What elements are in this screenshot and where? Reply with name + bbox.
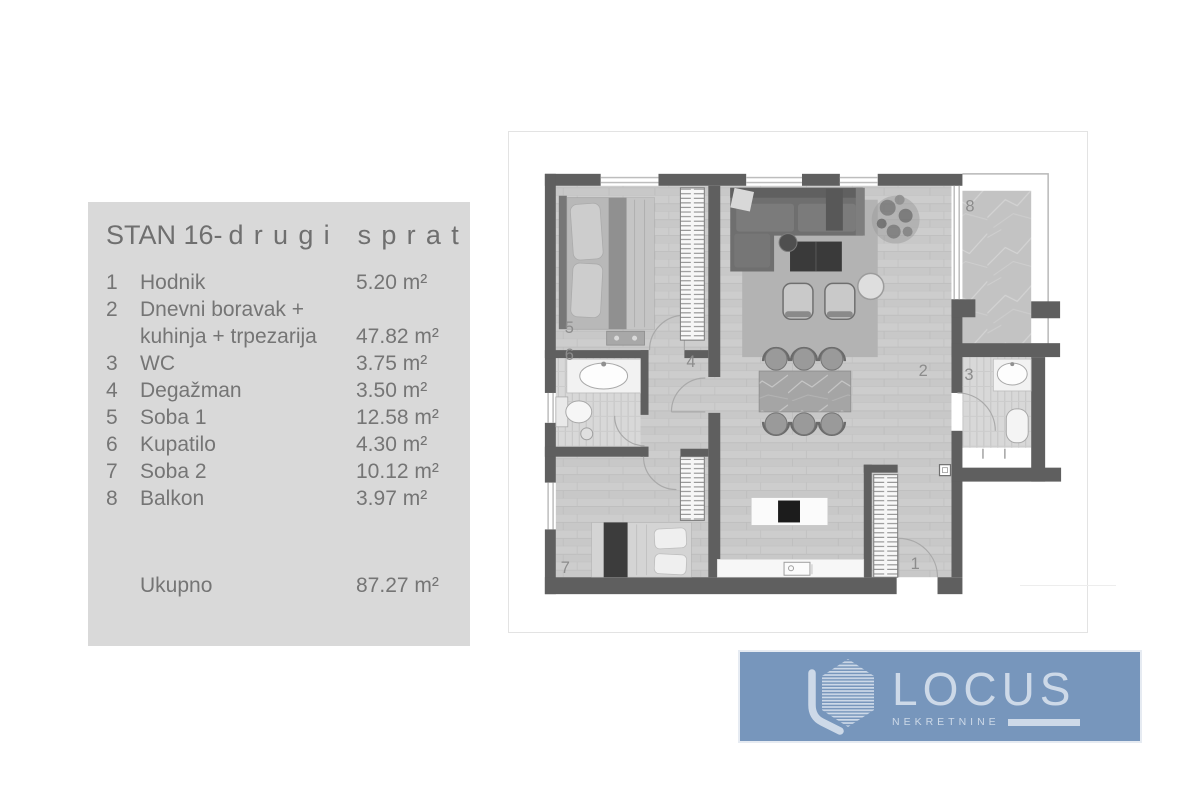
logo-text: LOCUS NEKRETNINE xyxy=(892,665,1080,728)
pouf xyxy=(858,273,884,299)
brand-name: LOCUS xyxy=(892,665,1080,713)
total-row: Ukupno 87.27 m² xyxy=(106,572,452,599)
label-hodnik: 1 xyxy=(911,555,920,573)
room-row: 7 Soba 2 10.12 m² xyxy=(106,458,452,485)
label-degazman: 4 xyxy=(686,353,695,371)
room-area: 3.50 m² xyxy=(356,377,452,404)
room-name: Degažman xyxy=(140,377,354,404)
room-name: Hodnik xyxy=(140,269,354,296)
room-area: 3.75 m² xyxy=(356,350,452,377)
title-floor: drugi sprat xyxy=(229,220,469,250)
room-name: Dnevni boravak + kuhinja + trpezarija xyxy=(140,296,354,350)
total-area: 87.27 m² xyxy=(356,572,452,599)
page-title: STAN 16-drugi sprat xyxy=(106,220,452,251)
room-row: 6 Kupatilo 4.30 m² xyxy=(106,431,452,458)
cooktop xyxy=(778,501,800,523)
brand-subrow: NEKRETNINE xyxy=(892,716,1080,728)
room-name: Balkon xyxy=(140,485,354,512)
room-number: 6 xyxy=(106,431,140,458)
room-number: 3 xyxy=(106,350,140,377)
drafting-line xyxy=(1020,585,1116,586)
dining-set xyxy=(759,348,851,435)
label-living: 2 xyxy=(919,362,928,380)
room-name: Kupatilo xyxy=(140,431,354,458)
room-row: 8 Balkon 3.97 m² xyxy=(106,485,452,512)
room-number: 8 xyxy=(106,485,140,512)
room-row: 2 Dnevni boravak + kuhinja + trpezarija … xyxy=(106,296,452,350)
apartment-info-panel: STAN 16-drugi sprat 1 Hodnik 5.20 m² 2 D… xyxy=(88,202,470,646)
label-kupatilo: 6 xyxy=(565,346,574,364)
room-row: 5 Soba 1 12.58 m² xyxy=(106,404,452,431)
room-area: 47.82 m² xyxy=(356,323,452,350)
bed-soba2 xyxy=(592,522,692,577)
logo-banner: LOCUS NEKRETNINE xyxy=(738,650,1142,743)
room-row: 4 Degažman 3.50 m² xyxy=(106,377,452,404)
room-area: 10.12 m² xyxy=(356,458,452,485)
sink xyxy=(784,562,810,575)
room-row: 1 Hodnik 5.20 m² xyxy=(106,269,452,296)
label-soba2: 7 xyxy=(561,559,570,577)
room-list: 1 Hodnik 5.20 m² 2 Dnevni boravak + kuhi… xyxy=(106,269,452,599)
room-number: 2 xyxy=(106,296,140,323)
hexagon-icon xyxy=(822,659,874,727)
room-number: 4 xyxy=(106,377,140,404)
label-balkon: 8 xyxy=(965,198,974,216)
floorplan: 1 2 3 4 5 6 7 8 xyxy=(508,131,1088,633)
room-area: 4.30 m² xyxy=(356,431,452,458)
room-area: 12.58 m² xyxy=(356,404,452,431)
room-number: 5 xyxy=(106,404,140,431)
room-name: Soba 1 xyxy=(140,404,354,431)
room-number: 7 xyxy=(106,458,140,485)
room-row: 3 WC 3.75 m² xyxy=(106,350,452,377)
room-number: 1 xyxy=(106,269,140,296)
label-soba1: 5 xyxy=(565,319,574,337)
room-name: WC xyxy=(140,350,354,377)
page: STAN 16-drugi sprat 1 Hodnik 5.20 m² 2 D… xyxy=(0,0,1200,800)
total-label: Ukupno xyxy=(140,572,354,599)
brand-bar xyxy=(1008,719,1080,726)
floorplan-svg: 1 2 3 4 5 6 7 8 xyxy=(509,132,1087,632)
label-wc: 3 xyxy=(964,366,973,384)
room-area: 3.97 m² xyxy=(356,485,452,512)
room-area: 5.20 m² xyxy=(356,269,452,296)
title-apartment: STAN 16- xyxy=(106,220,223,250)
locus-logo-icon xyxy=(800,655,888,739)
room-name: Soba 2 xyxy=(140,458,354,485)
brand-subtitle: NEKRETNINE xyxy=(892,716,1000,728)
